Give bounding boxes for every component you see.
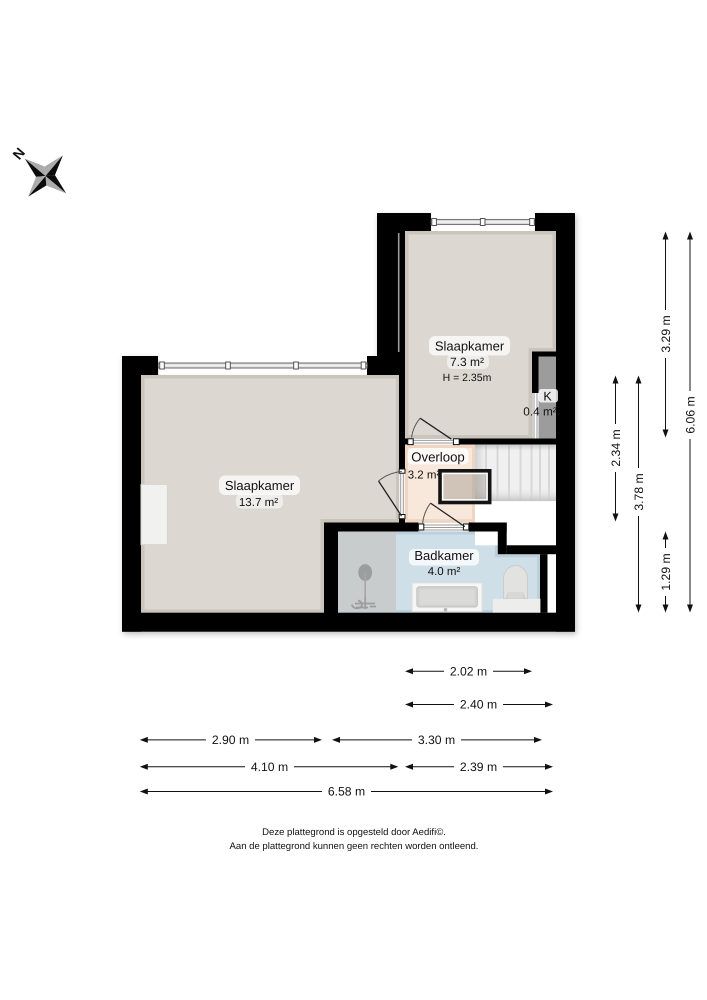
svg-text:13.7 m²: 13.7 m² xyxy=(239,496,278,509)
svg-text:1.29 m: 1.29 m xyxy=(659,553,673,590)
svg-text:2.90 m: 2.90 m xyxy=(212,733,249,747)
svg-text:3.29 m: 3.29 m xyxy=(659,315,673,352)
svg-text:N: N xyxy=(9,144,28,162)
svg-text:3.30 m: 3.30 m xyxy=(418,733,455,747)
svg-text:4.10 m: 4.10 m xyxy=(251,760,288,774)
svg-text:0.4 m²: 0.4 m² xyxy=(523,405,557,419)
svg-text:Slaapkamer: Slaapkamer xyxy=(225,478,295,493)
svg-text:2.02 m: 2.02 m xyxy=(450,665,487,679)
svg-text:K: K xyxy=(543,390,552,404)
svg-text:4.0 m²: 4.0 m² xyxy=(428,566,461,578)
svg-text:2.34 m: 2.34 m xyxy=(609,429,623,466)
svg-text:2.40 m: 2.40 m xyxy=(460,698,497,712)
svg-text:Slaapkamer: Slaapkamer xyxy=(435,338,505,353)
svg-text:Badkamer: Badkamer xyxy=(414,548,474,563)
svg-text:6.58 m: 6.58 m xyxy=(328,785,365,799)
svg-text:2.39 m: 2.39 m xyxy=(460,760,497,774)
svg-text:Aan de plattegrond kunnen geen: Aan de plattegrond kunnen geen rechten w… xyxy=(230,841,479,852)
svg-text:7.3 m²: 7.3 m² xyxy=(450,355,484,369)
svg-text:Overloop: Overloop xyxy=(411,449,465,464)
svg-text:3.2 m²: 3.2 m² xyxy=(408,470,441,482)
svg-text:6.06 m: 6.06 m xyxy=(684,396,698,433)
svg-text:H = 2.35m: H = 2.35m xyxy=(443,372,492,384)
svg-text:Deze plattegrond is opgesteld: Deze plattegrond is opgesteld door Aedif… xyxy=(262,827,446,838)
svg-text:3.78 m: 3.78 m xyxy=(632,473,646,510)
